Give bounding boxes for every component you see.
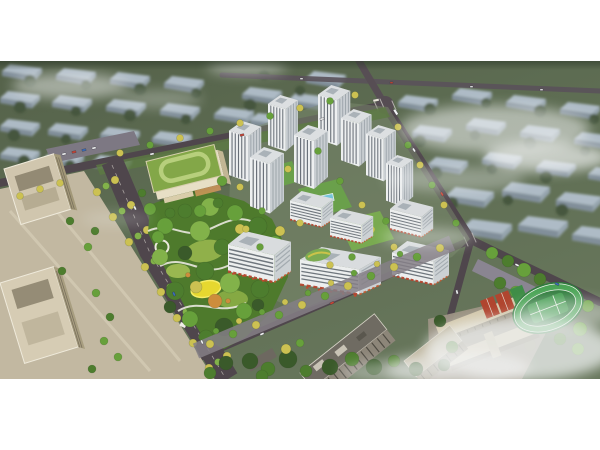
- page: [0, 0, 600, 450]
- tower: [294, 125, 328, 189]
- aerial-render-image: [0, 61, 600, 379]
- render-scene: [0, 61, 600, 379]
- tower: [250, 147, 284, 214]
- horizon-shade: [0, 61, 600, 70]
- tower: [268, 95, 298, 151]
